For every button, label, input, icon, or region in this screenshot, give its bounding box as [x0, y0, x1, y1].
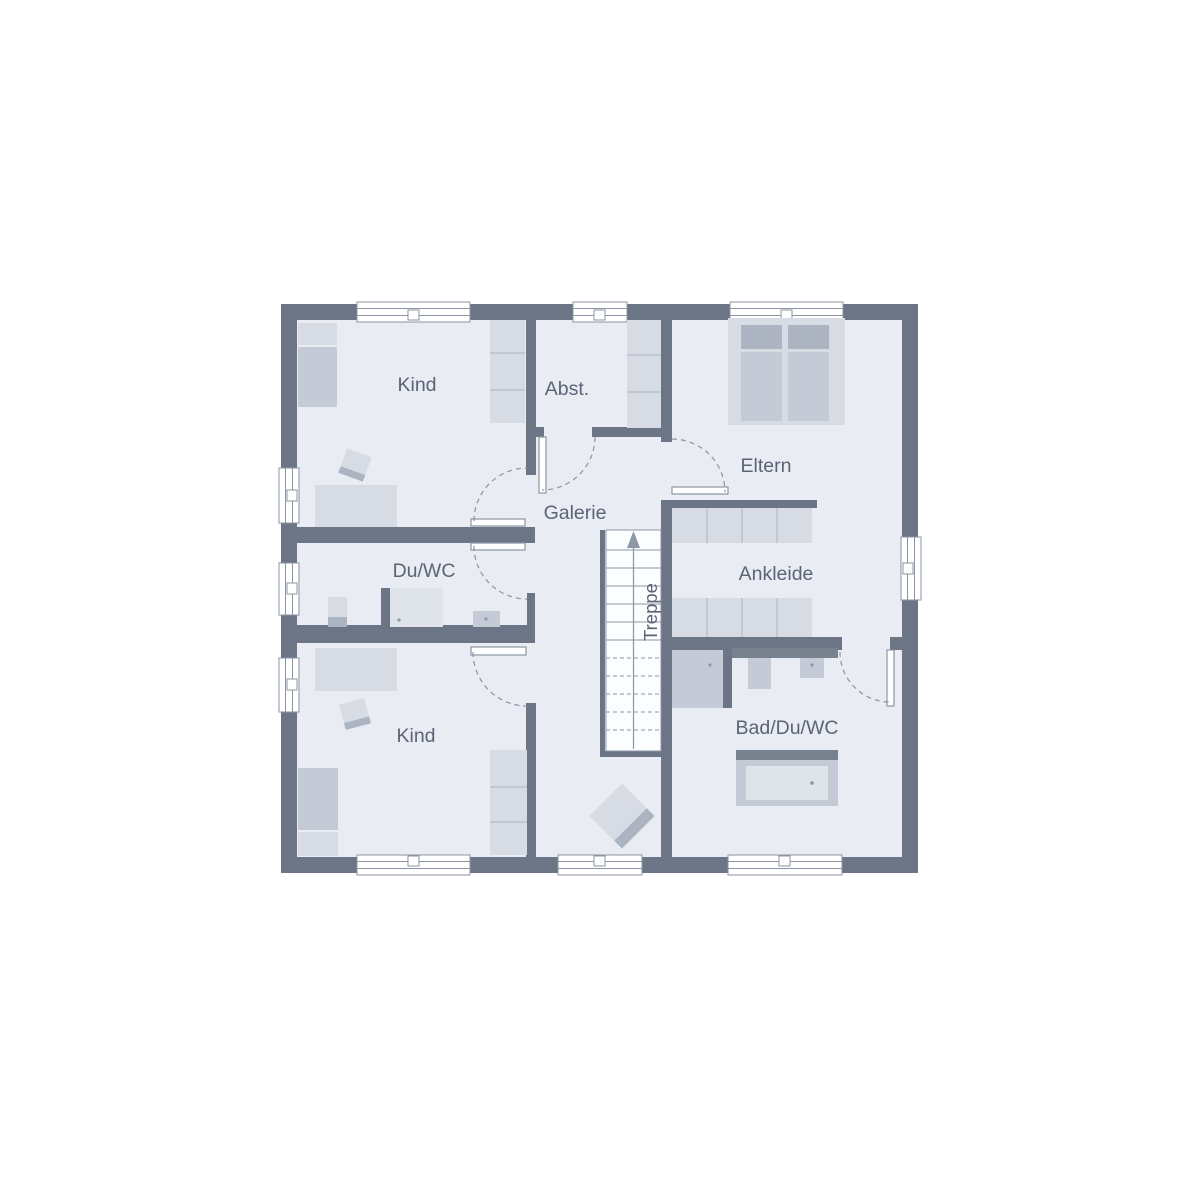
door-leaf	[539, 437, 546, 493]
desk	[315, 648, 397, 691]
wall	[536, 427, 544, 437]
door-leaf	[672, 487, 728, 494]
door-leaf	[471, 543, 525, 550]
shelf-cabinet	[627, 320, 661, 428]
basin-drain	[810, 663, 813, 666]
window	[357, 302, 470, 322]
shower-drain	[397, 618, 400, 621]
wall	[526, 703, 536, 857]
shower-drain	[708, 663, 711, 666]
abstellraum-furniture	[627, 320, 661, 428]
bed-pillow	[788, 325, 829, 349]
wardrobe	[490, 320, 525, 423]
room-label-treppe: Treppe	[640, 583, 661, 641]
floor-plan: Kind Abst. Eltern Galerie Du/WC Ankleide…	[0, 0, 1200, 1200]
room-label-ankleide: Ankleide	[739, 563, 814, 585]
shower-partition-wall	[723, 650, 732, 708]
eltern-furniture	[728, 318, 845, 425]
wall	[661, 320, 672, 442]
bed-mattress	[741, 352, 782, 421]
door-leaf	[471, 647, 526, 655]
wardrobe	[490, 750, 527, 855]
wall	[297, 625, 535, 643]
window	[279, 658, 299, 712]
wardrobe-row	[672, 508, 812, 543]
stairs	[600, 530, 661, 757]
window	[573, 302, 627, 322]
stair-railing	[600, 530, 605, 757]
wall	[297, 527, 535, 543]
wall	[661, 500, 672, 857]
room-label-kind-top: Kind	[397, 374, 436, 396]
window	[279, 468, 299, 523]
room-label-bad: Bad/Du/WC	[736, 717, 839, 739]
bed	[298, 768, 338, 830]
room-label-abstellraum: Abst.	[545, 378, 589, 400]
wall	[592, 427, 672, 437]
shower-partition-wall	[381, 588, 390, 627]
window	[279, 563, 299, 615]
washbasin	[748, 658, 771, 689]
wall	[672, 500, 817, 508]
wardrobe-row	[672, 598, 812, 637]
bed	[298, 347, 337, 407]
bathtub-head-panel	[736, 750, 838, 760]
washbasin	[800, 658, 824, 678]
bed-mattress	[788, 352, 829, 421]
toilet	[328, 597, 347, 617]
shower	[672, 650, 723, 708]
door-leaf	[887, 650, 894, 706]
wall	[526, 320, 536, 475]
page: Kind Abst. Eltern Galerie Du/WC Ankleide…	[0, 0, 1200, 1200]
room-label-kind-bottom: Kind	[396, 725, 435, 747]
window	[901, 537, 921, 600]
room-label-duwc: Du/WC	[393, 560, 456, 582]
desk	[315, 485, 397, 527]
sink-drain	[484, 617, 487, 620]
door-leaf	[471, 519, 525, 526]
bathtub-inner	[746, 766, 828, 800]
bed-pillow	[298, 323, 337, 345]
room-label-galerie: Galerie	[544, 502, 607, 524]
wall	[527, 593, 535, 643]
vanity-counter	[732, 648, 838, 658]
wall	[890, 637, 902, 650]
bathtub-drain	[810, 781, 814, 785]
window	[728, 855, 842, 875]
toilet-tank	[328, 617, 347, 627]
window	[357, 855, 470, 875]
window	[558, 855, 642, 875]
bed-pillow	[741, 325, 782, 349]
stair-railing	[600, 751, 661, 757]
room-label-eltern: Eltern	[741, 455, 792, 477]
bed-pillow	[298, 832, 338, 856]
